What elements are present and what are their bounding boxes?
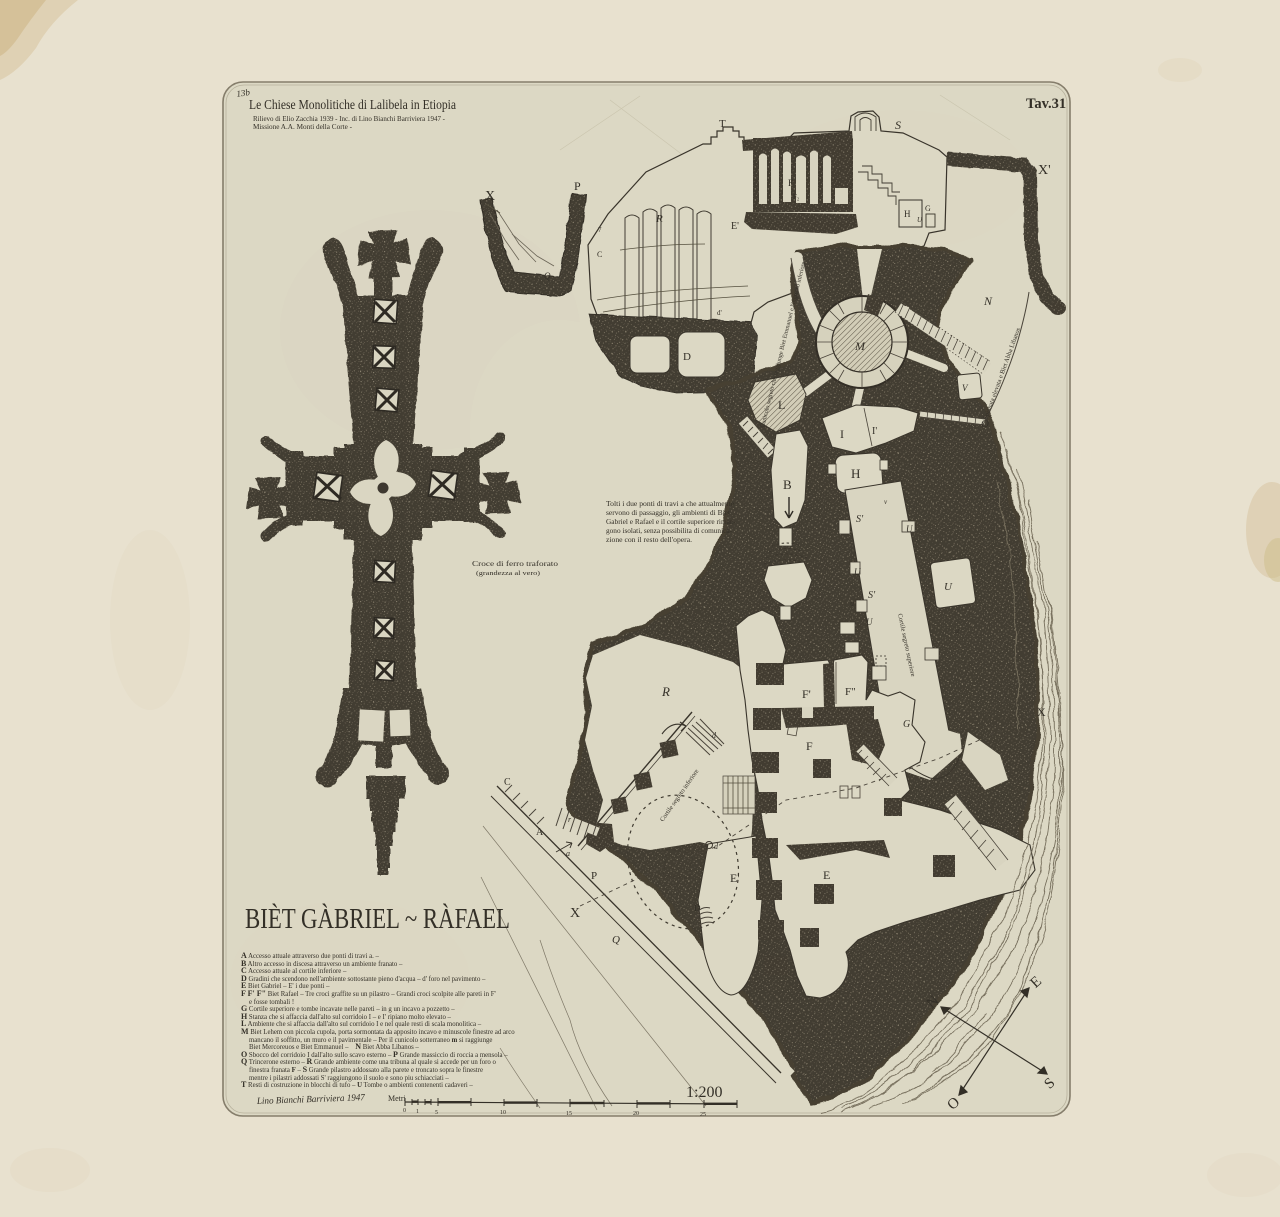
svg-text:Rilievo di Elio Zacchia 1939 -: Rilievo di Elio Zacchia 1939 - Inc. di L… [253, 116, 446, 123]
svg-text:G: G [903, 719, 910, 730]
svg-text:H Stanza che si affaccia dall': H Stanza che si affaccia dall'alto sul c… [241, 1012, 452, 1021]
svg-text:O Sbocco del corridoio I dall': O Sbocco del corridoio I dall'alto sullo… [241, 1050, 508, 1059]
svg-text:T: T [719, 118, 726, 130]
svg-text:R: R [655, 213, 663, 225]
svg-text:10: 10 [500, 1110, 506, 1116]
svg-text:F F' F" Biet Rafael – Tre croc: F F' F" Biet Rafael – Tre croci graffite… [241, 989, 496, 998]
svg-text:A Accesso attuale attraverso d: A Accesso attuale attraverso due ponti d… [241, 951, 380, 960]
svg-text:I': I' [872, 426, 877, 437]
svg-text:D: D [683, 351, 691, 363]
svg-text:A: A [536, 827, 544, 838]
svg-text:Q Trincerone esterno – R Grand: Q Trincerone esterno – R Grande ambiente… [241, 1057, 497, 1066]
svg-text:gono isolati, senza possibilit: gono isolati, senza possibilita di comun… [606, 526, 733, 535]
svg-text:mentre i pilastri addossati S': mentre i pilastri addossati S' raggiungo… [249, 1075, 449, 1082]
svg-text:B: B [783, 477, 792, 492]
svg-text:d': d' [717, 309, 722, 317]
svg-text:R: R [661, 684, 670, 699]
svg-text:Gabriel e Rafael e il cortile: Gabriel e Rafael e il cortile superiore … [606, 517, 737, 526]
svg-text:Tav.31: Tav.31 [1026, 96, 1066, 112]
svg-text:U: U [866, 617, 873, 627]
svg-text:finestra franata F – S Grande: finestra franata F – S Grande pilastro a… [249, 1065, 483, 1074]
svg-text:servono di passaggio, gli ambi: servono di passaggio, gli ambienti di Bi… [606, 508, 731, 517]
svg-text:U: U [854, 567, 861, 577]
svg-text:0: 0 [403, 1108, 406, 1114]
svg-text:P: P [591, 870, 597, 882]
svg-text:E: E [823, 868, 830, 882]
svg-text:Missione A.A. Monti della Cort: Missione A.A. Monti della Corte - [253, 124, 353, 131]
svg-text:D: D [694, 903, 701, 913]
svg-text:F': F' [802, 687, 811, 701]
svg-text:u: u [850, 599, 854, 608]
svg-text:Q: Q [612, 934, 620, 946]
svg-text:Tolti i due ponti di travi a c: Tolti i due ponti di travi a che attualm… [606, 499, 735, 508]
svg-text:Metri: Metri [388, 1094, 407, 1103]
svg-text:Croce di ferro traforato: Croce di ferro traforato [472, 560, 559, 568]
svg-text:H: H [904, 209, 911, 219]
svg-text:E': E' [730, 871, 740, 885]
svg-text:u: u [955, 626, 959, 635]
svg-text:G Cortile superiore e tombe in: G Cortile superiore e tombe incavate nel… [241, 1004, 455, 1013]
svg-text:N: N [983, 294, 993, 308]
svg-text:E': E' [731, 221, 739, 232]
svg-text:zione con il resto dell'opera.: zione con il resto dell'opera. [606, 535, 692, 544]
svg-text:s: s [871, 660, 874, 668]
svg-text:C Accesso attuale al cortile i: C Accesso attuale al cortile inferiore – [241, 966, 347, 975]
svg-text:1: 1 [416, 1109, 419, 1115]
svg-text:e fosse tombali !: e fosse tombali ! [249, 999, 294, 1006]
svg-text:25: 25 [700, 1112, 706, 1118]
svg-text:F: F [806, 739, 813, 753]
svg-text:BIÈT GÀBRIEL ~ RÀFAEL: BIÈT GÀBRIEL ~ RÀFAEL [245, 902, 510, 935]
svg-text:F₂: F₂ [793, 193, 800, 201]
svg-text:C: C [597, 250, 602, 259]
svg-text:F: F [788, 178, 793, 188]
svg-text:S: S [895, 118, 901, 132]
svg-text:mancano il soffitto, un muro e: mancano il soffitto, un muro e il pavime… [249, 1037, 492, 1044]
svg-text:U: U [906, 524, 913, 534]
svg-text:5: 5 [435, 1110, 438, 1116]
svg-text:C: C [504, 777, 511, 788]
svg-text:L Ambiente che si affaccia dal: L Ambiente che si affaccia dall'alto sul… [241, 1019, 482, 1028]
svg-text:15: 15 [566, 1111, 572, 1117]
svg-text:X': X' [1038, 163, 1051, 178]
svg-text:1:200: 1:200 [686, 1084, 722, 1101]
svg-text:7: 7 [598, 226, 602, 234]
svg-text:M: M [854, 339, 866, 353]
svg-text:X: X [1037, 705, 1046, 719]
svg-text:M Biet Lehem con piccola cupol: M Biet Lehem con piccola cupola, porta s… [241, 1027, 515, 1036]
svg-text:L: L [778, 398, 785, 412]
svg-text:X: X [570, 906, 580, 921]
svg-text:X: X [485, 189, 495, 204]
svg-text:S': S' [856, 514, 864, 525]
svg-text:D Gradini che scendono nell'am: D Gradini che scendono nell'ambiente sot… [241, 974, 486, 983]
svg-text:B Altro accesso in discesa att: B Altro accesso in discesa attraverso un… [241, 959, 403, 968]
svg-text:U: U [944, 581, 953, 593]
svg-text:S': S' [868, 590, 876, 601]
svg-text:Le Chiese Monolitiche di Lalib: Le Chiese Monolitiche di Lalibela in Eti… [249, 98, 457, 113]
svg-text:a: a [566, 849, 570, 858]
svg-text:T Resti di costruzione in bloc: T Resti di costruzione in blocchi di tuf… [241, 1080, 473, 1089]
svg-text:(grandezza al vero): (grandezza al vero) [476, 570, 540, 577]
svg-text:Q: Q [544, 271, 551, 281]
svg-text:H: H [851, 466, 860, 481]
svg-text:P: P [574, 179, 581, 193]
svg-text:I: I [840, 427, 844, 441]
svg-text:20: 20 [633, 1111, 639, 1117]
svg-text:F": F" [845, 686, 856, 698]
svg-text:G: G [925, 204, 931, 213]
